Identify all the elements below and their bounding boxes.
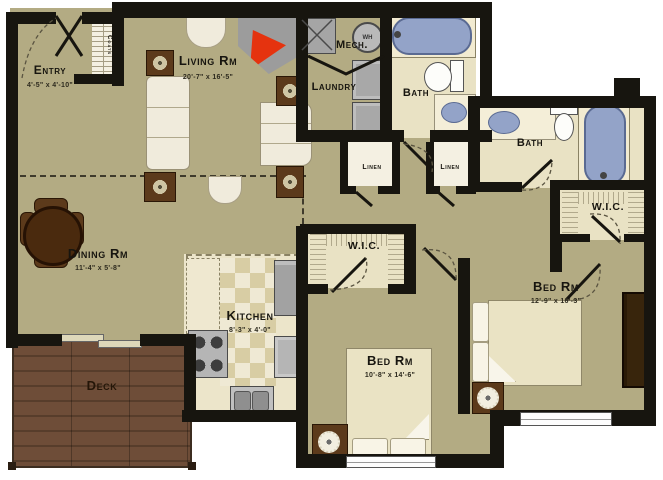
sink-basin <box>252 391 269 411</box>
wall-segment <box>300 224 416 234</box>
room-dims-bed-middle: 10'-8" x 14'-6" <box>346 372 434 379</box>
bath-sink <box>488 111 520 134</box>
lamp <box>318 431 340 453</box>
wall-segment <box>296 130 404 142</box>
room-label-deck: Deck <box>64 379 140 393</box>
deck-post <box>188 462 196 470</box>
wall-segment <box>140 334 196 346</box>
wall-segment <box>6 334 62 346</box>
wall-segment <box>468 96 480 192</box>
room-label-coats: Coats <box>94 22 112 68</box>
wall-segment <box>550 180 656 190</box>
room-dims-kitchen: 8'-3" x 4'-0" <box>210 327 290 334</box>
bath-sink <box>441 102 467 123</box>
wall-segment <box>644 96 656 426</box>
room-label-bed-right: Bed Rm <box>498 280 614 294</box>
room-label-linen-left: Linen <box>346 164 398 171</box>
room-label-bed-middle: Bed Rm <box>346 354 434 368</box>
room-label-linen-right: Linen <box>426 164 474 171</box>
wall-segment <box>550 180 560 242</box>
toilet-tank <box>450 60 464 92</box>
pillow <box>472 342 489 382</box>
bathtub <box>392 17 472 55</box>
wall-segment <box>480 2 492 108</box>
wall-segment <box>380 14 392 138</box>
room-dims-entry: 4'-5" x 4'-10" <box>8 82 92 89</box>
wall-segment <box>624 234 656 242</box>
pillow <box>472 302 489 342</box>
deck-post <box>8 462 16 470</box>
tub-faucet <box>600 172 607 179</box>
toilet-bowl <box>554 113 574 141</box>
wall-segment <box>430 130 492 142</box>
sliding-door-panel <box>98 340 142 348</box>
wall-segment <box>426 186 440 194</box>
deck-floor <box>12 340 192 468</box>
dresser <box>622 292 646 388</box>
room-label-entry: Entry <box>8 64 92 77</box>
window <box>346 456 436 468</box>
wall-segment <box>184 334 196 418</box>
room-label-bath-right: Bath <box>502 138 558 150</box>
room-label-bath-top: Bath <box>390 88 442 100</box>
tub-faucet <box>394 31 401 38</box>
kitchen-boundary-dashed <box>186 254 300 256</box>
wall-segment <box>378 186 400 194</box>
sofa <box>146 76 190 170</box>
room-dims-bed-right: 12'-9" x 16'-3" <box>498 298 614 305</box>
room-label-wic-middle: W.I.C. <box>322 241 406 252</box>
wall-segment <box>614 78 640 98</box>
room-label-mech: Mech. <box>324 40 380 52</box>
wall-segment <box>458 258 470 414</box>
wall-segment <box>388 284 416 294</box>
end-table <box>144 172 176 202</box>
wall-segment <box>296 14 308 138</box>
floor-plan: WH <box>0 0 663 480</box>
lamp <box>477 387 499 409</box>
wall-segment <box>296 226 308 468</box>
end-table <box>276 166 304 198</box>
wall-segment <box>476 182 522 192</box>
room-label-laundry: Laundry <box>294 82 374 94</box>
wall-segment <box>456 186 476 194</box>
wall-segment <box>340 186 356 194</box>
sink-basin <box>234 391 251 411</box>
wall-segment <box>550 234 562 272</box>
room-label-kitchen: Kitchen <box>210 309 290 323</box>
room-dims-living: 20'-7" x 16'-5" <box>148 74 268 81</box>
wall-segment <box>182 410 308 422</box>
room-label-dining: Dining Rm <box>44 247 152 261</box>
room-dims-dining: 11'-4" x 5'-8" <box>44 265 152 272</box>
wall-segment <box>300 284 328 294</box>
room-label-living: Living Rm <box>148 54 268 68</box>
wall-segment <box>6 12 56 24</box>
window <box>520 412 612 426</box>
room-label-wic-right: W.I.C. <box>574 202 642 213</box>
wall-segment <box>6 12 18 348</box>
